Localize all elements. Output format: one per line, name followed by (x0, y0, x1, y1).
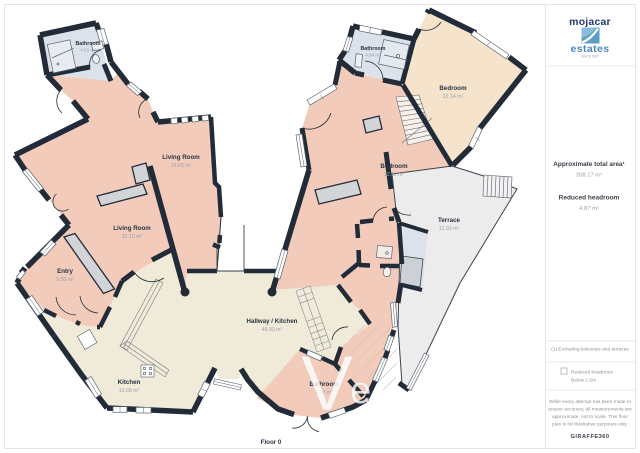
svg-text:V: V (301, 339, 353, 427)
svg-text:Approximate total area¹: Approximate total area¹ (553, 161, 624, 168)
svg-text:10.65 m²: 10.65 m² (119, 388, 140, 394)
svg-text:4.87 m²: 4.87 m² (579, 206, 599, 212)
svg-text:Floor 0: Floor 0 (261, 439, 282, 446)
svg-text:approximate, not to scale. Thi: approximate, not to scale. This floor (552, 414, 628, 420)
svg-text:Living Room: Living Room (162, 154, 200, 161)
svg-text:Bedroom: Bedroom (439, 85, 467, 92)
svg-text:ensure accuracy, all measureme: ensure accuracy, all measurements are (548, 407, 632, 413)
svg-text:32.11 m²: 32.11 m² (384, 172, 404, 178)
svg-text:SINCE 1987: SINCE 1987 (581, 55, 599, 59)
svg-text:46.93 m²: 46.93 m² (262, 327, 283, 333)
svg-text:Reduced headroom: Reduced headroom (559, 195, 620, 202)
svg-text:Living Room: Living Room (113, 225, 151, 232)
svg-text:Kitchen: Kitchen (118, 379, 141, 386)
svg-text:GIRAFFE360: GIRAFFE360 (571, 434, 610, 440)
svg-text:Entry: Entry (57, 268, 73, 275)
svg-text:Reduced headroom: Reduced headroom (571, 370, 613, 376)
svg-text:While every attempt has been m: While every attempt has been made to (549, 399, 631, 405)
svg-text:Bathroom: Bathroom (75, 41, 100, 47)
svg-text:4.52 m²: 4.52 m² (80, 48, 96, 53)
svg-text:estates: estates (571, 43, 610, 55)
svg-text:Below 1.5m: Below 1.5m (571, 378, 596, 384)
svg-text:mojacar: mojacar (569, 16, 611, 28)
svg-text:(1) Excluding balconies and te: (1) Excluding balconies and terraces (551, 347, 629, 353)
svg-text:e: e (350, 370, 371, 412)
svg-text:Terrace: Terrace (438, 217, 460, 224)
svg-text:plan is for illustrative purpo: plan is for illustrative purposes only. (552, 422, 628, 428)
svg-text:Bedroom: Bedroom (380, 163, 408, 170)
svg-text:4.84 m²: 4.84 m² (365, 53, 381, 58)
svg-text:Hallway / Kitchen: Hallway / Kitchen (247, 318, 298, 325)
svg-text:12.93 m²: 12.93 m² (439, 226, 460, 232)
svg-text:9.50 m²: 9.50 m² (56, 277, 74, 283)
svg-text:208.17 m²: 208.17 m² (576, 173, 602, 179)
svg-text:16.63 m²: 16.63 m² (171, 163, 192, 169)
svg-text:32.10 m²: 32.10 m² (122, 234, 143, 240)
svg-text:22.14 m²: 22.14 m² (443, 94, 464, 100)
svg-text:Bathroom: Bathroom (360, 46, 385, 52)
